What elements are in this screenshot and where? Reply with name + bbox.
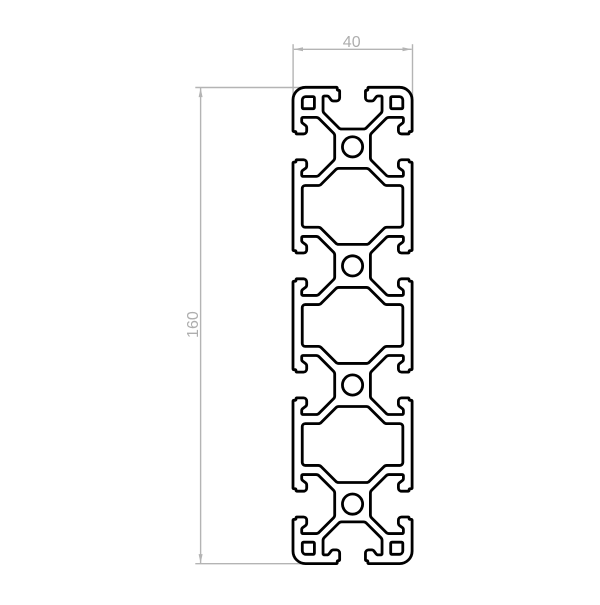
svg-text:40: 40: [343, 34, 361, 51]
svg-text:160: 160: [185, 311, 202, 338]
